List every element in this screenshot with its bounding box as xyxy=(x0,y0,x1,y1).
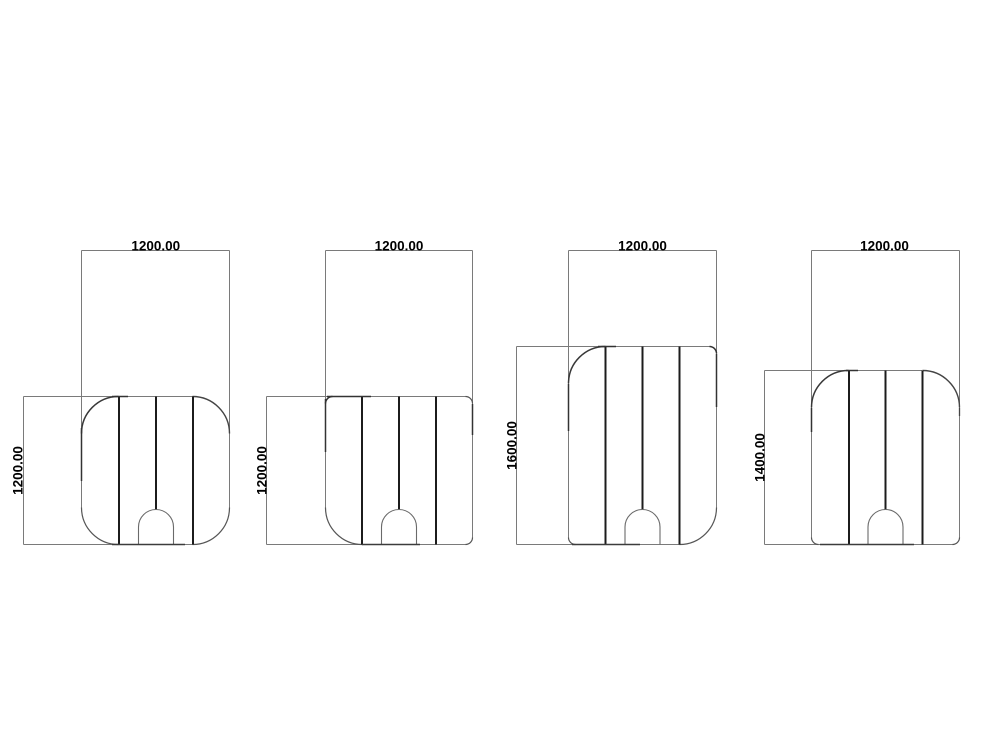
svg-text:1200.00: 1200.00 xyxy=(375,239,424,254)
svg-text:1600.00: 1600.00 xyxy=(505,421,520,470)
svg-text:1200.00: 1200.00 xyxy=(131,239,180,254)
svg-text:1200.00: 1200.00 xyxy=(618,239,667,254)
svg-text:1200.00: 1200.00 xyxy=(11,446,26,495)
svg-text:1400.00: 1400.00 xyxy=(753,433,768,482)
svg-text:1200.00: 1200.00 xyxy=(255,446,270,495)
svg-text:1200.00: 1200.00 xyxy=(860,239,909,254)
